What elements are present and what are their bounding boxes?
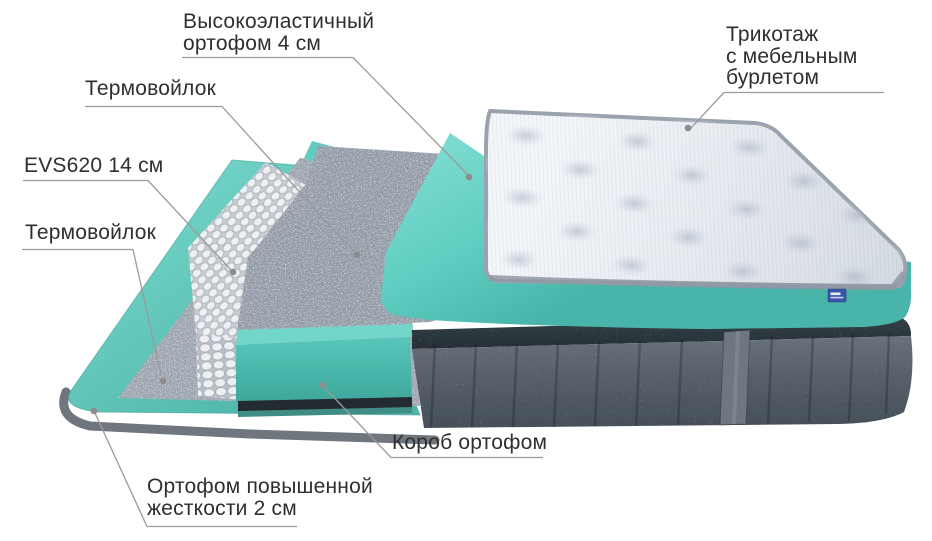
label-tricot-line2: с мебельным — [726, 46, 858, 68]
mattress-layer-diagram: Высокоэластичный ортофом 4 см Термовойло… — [0, 0, 932, 541]
label-tricot-line1: Трикотаж — [726, 24, 858, 46]
label-hi-foam: Высокоэластичный ортофом 4 см — [183, 11, 374, 55]
layer-korob-orthofoam — [236, 324, 413, 417]
label-ortho-hard-line2: жесткости 2 см — [147, 498, 373, 520]
label-korob: Короб ортофом — [392, 432, 547, 454]
label-evs620-text: EVS620 14 см — [24, 155, 163, 177]
label-hi-foam-line1: Высокоэластичный — [183, 11, 374, 33]
brand-tag — [828, 289, 846, 302]
label-evs620: EVS620 14 см — [24, 155, 163, 177]
label-thermofelt-lower-text: Термовойлок — [25, 222, 156, 244]
label-thermofelt-upper-text: Термовойлок — [85, 78, 216, 100]
label-ortho-hard: Ортофом повышенной жесткости 2 см — [147, 476, 373, 520]
label-ortho-hard-line1: Ортофом повышенной — [147, 476, 373, 498]
label-thermofelt-lower: Термовойлок — [25, 222, 156, 244]
layer-mattress-base — [412, 316, 912, 428]
label-hi-foam-line2: ортофом 4 см — [183, 33, 374, 55]
layer-tricot-cover — [486, 111, 905, 302]
label-tricot-line3: бурлетом — [726, 67, 858, 89]
label-thermofelt-upper: Термовойлок — [85, 78, 216, 100]
label-tricot: Трикотаж с мебельным бурлетом — [726, 24, 858, 89]
label-korob-text: Короб ортофом — [392, 432, 547, 454]
